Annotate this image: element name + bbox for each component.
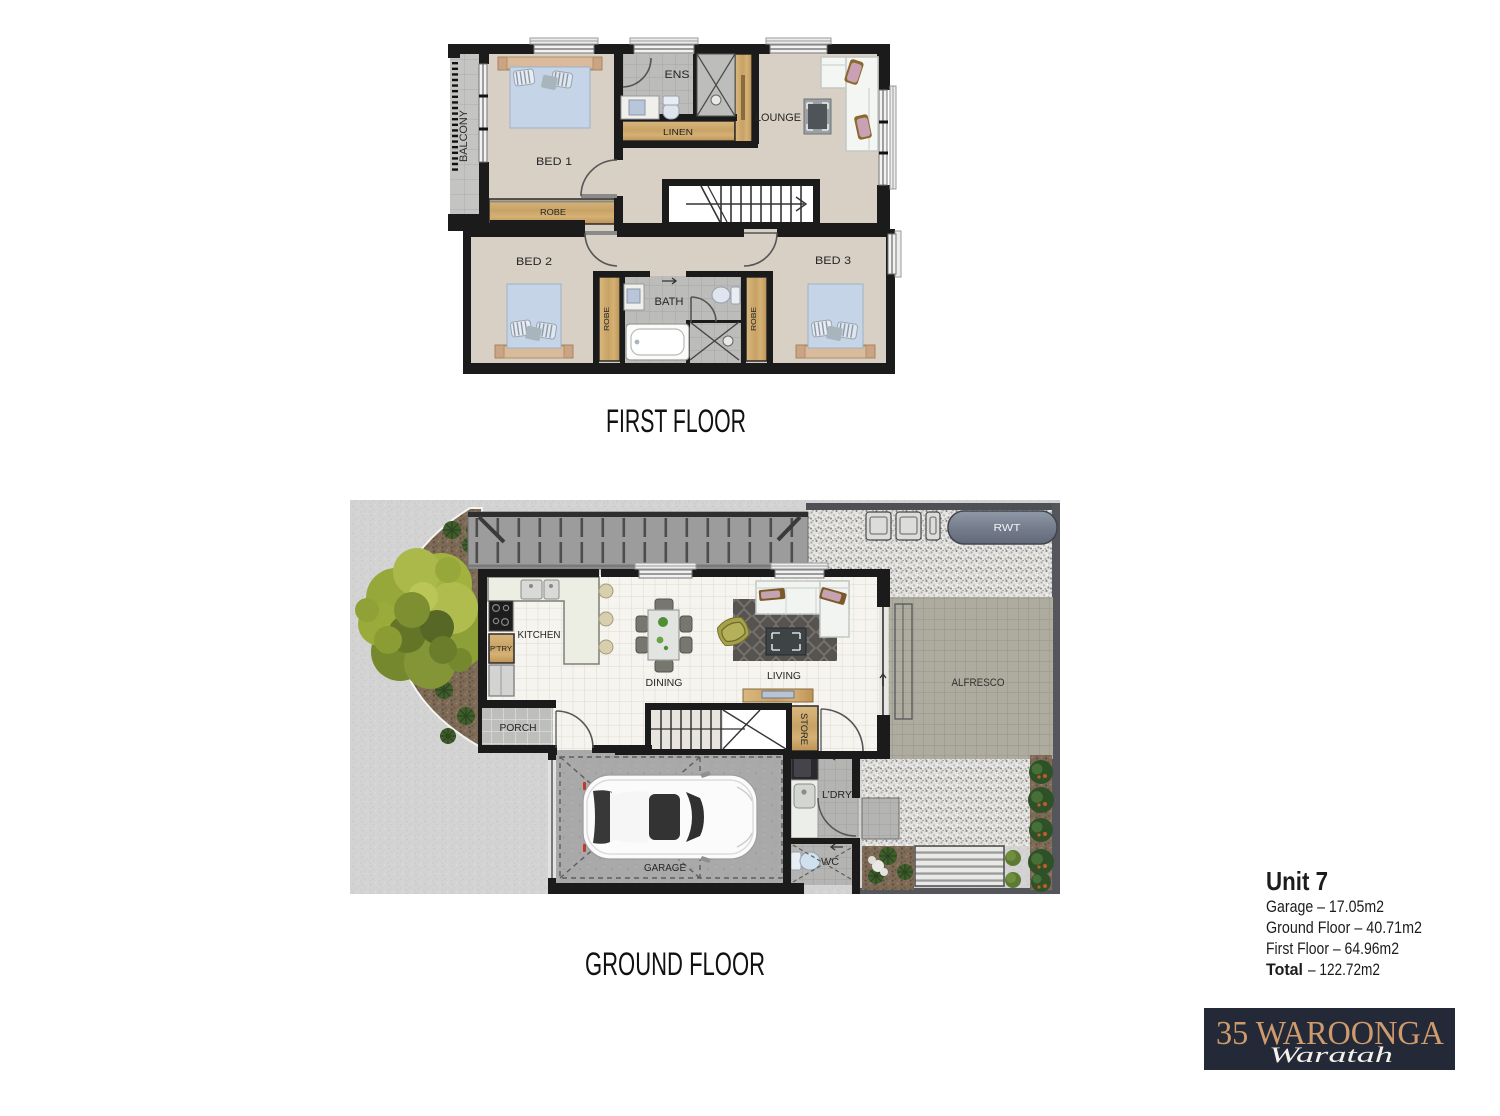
svg-text:LIVING: LIVING xyxy=(767,670,801,682)
svg-text:– 122.72m2: – 122.72m2 xyxy=(1308,961,1380,979)
svg-text:BATH: BATH xyxy=(655,296,684,308)
svg-text:Garage – 17.05m2: Garage – 17.05m2 xyxy=(1266,898,1384,916)
svg-text:Total: Total xyxy=(1266,961,1303,979)
svg-text:P’TRY: P’TRY xyxy=(490,646,512,653)
svg-text:RWT: RWT xyxy=(994,522,1022,534)
svg-text:L’DRY: L’DRY xyxy=(822,790,852,801)
svg-text:Ground Floor – 40.71m2: Ground Floor – 40.71m2 xyxy=(1266,919,1422,937)
svg-text:STORE: STORE xyxy=(799,713,809,745)
svg-text:ROBE: ROBE xyxy=(540,208,566,217)
svg-text:ROBE: ROBE xyxy=(749,307,758,331)
svg-text:LOUNGE: LOUNGE xyxy=(755,112,801,124)
svg-text:PORCH: PORCH xyxy=(500,722,537,734)
svg-text:FIRST FLOOR: FIRST FLOOR xyxy=(606,403,746,439)
svg-text:First Floor – 64.96m2: First Floor – 64.96m2 xyxy=(1266,940,1399,958)
svg-text:GROUND FLOOR: GROUND FLOOR xyxy=(585,946,765,982)
svg-text:ENS: ENS xyxy=(665,69,690,81)
svg-text:KITCHEN: KITCHEN xyxy=(518,629,561,641)
svg-text:DINING: DINING xyxy=(646,677,683,689)
svg-text:BED 3: BED 3 xyxy=(815,255,851,267)
svg-text:Waratah: Waratah xyxy=(1269,1042,1393,1067)
svg-text:BED 1: BED 1 xyxy=(536,156,572,168)
svg-text:BED 2: BED 2 xyxy=(516,256,552,268)
svg-text:ROBE: ROBE xyxy=(602,307,611,331)
svg-text:Unit 7: Unit 7 xyxy=(1266,866,1328,896)
svg-text:LINEN: LINEN xyxy=(663,127,693,137)
svg-text:GARAGE: GARAGE xyxy=(644,862,686,874)
svg-text:ALFRESCO: ALFRESCO xyxy=(952,677,1005,689)
svg-text:BALCONY: BALCONY xyxy=(458,109,470,162)
